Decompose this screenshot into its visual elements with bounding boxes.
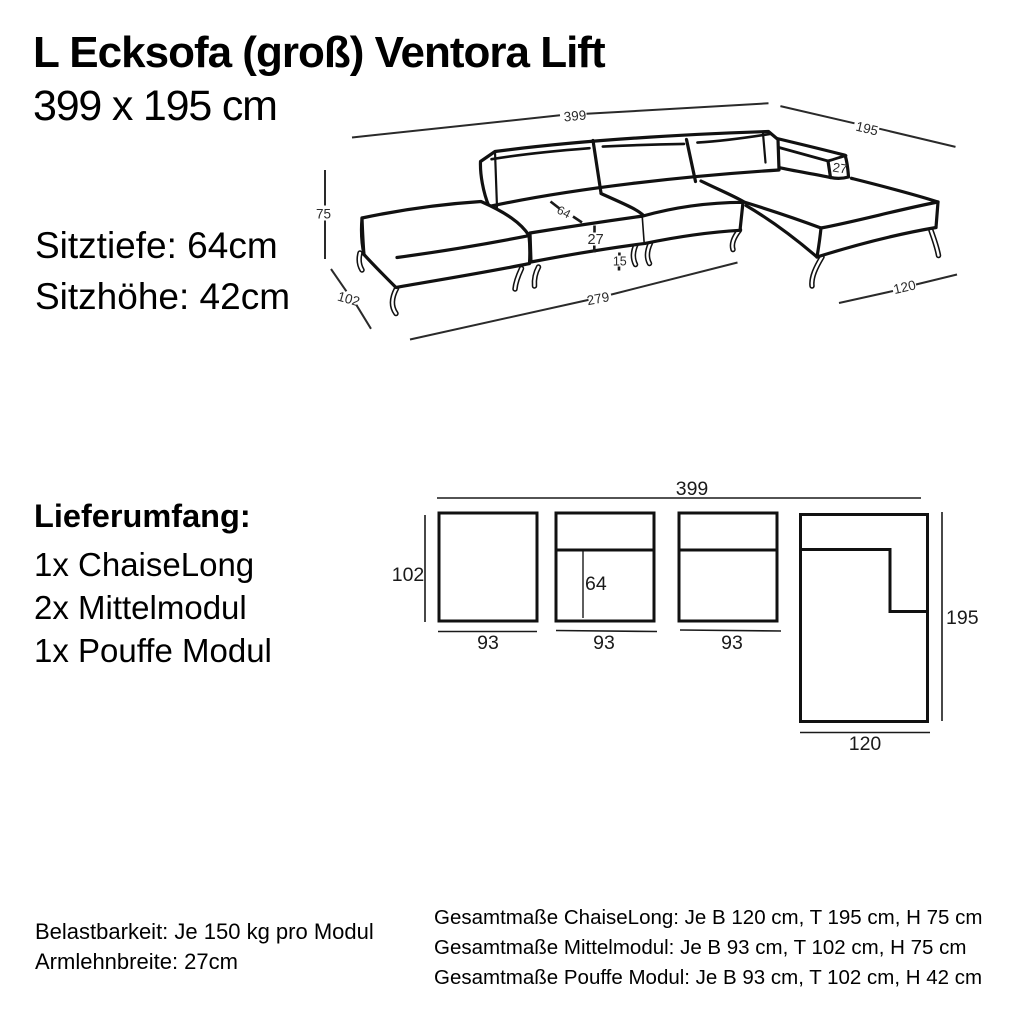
svg-text:279: 279 (586, 289, 611, 308)
svg-text:93: 93 (721, 632, 743, 654)
svg-text:399: 399 (563, 108, 587, 125)
svg-text:27: 27 (832, 159, 849, 176)
svg-text:102: 102 (392, 564, 425, 586)
svg-text:195: 195 (854, 119, 879, 139)
svg-text:93: 93 (593, 632, 615, 654)
svg-text:27: 27 (588, 232, 604, 248)
svg-text:120: 120 (849, 733, 882, 755)
svg-text:102: 102 (336, 289, 362, 310)
svg-text:64: 64 (585, 573, 607, 595)
svg-text:15: 15 (613, 255, 627, 269)
svg-text:399: 399 (676, 478, 709, 500)
svg-text:195: 195 (946, 607, 979, 629)
svg-text:120: 120 (892, 277, 917, 297)
svg-text:93: 93 (477, 632, 499, 654)
svg-text:75: 75 (316, 206, 331, 221)
